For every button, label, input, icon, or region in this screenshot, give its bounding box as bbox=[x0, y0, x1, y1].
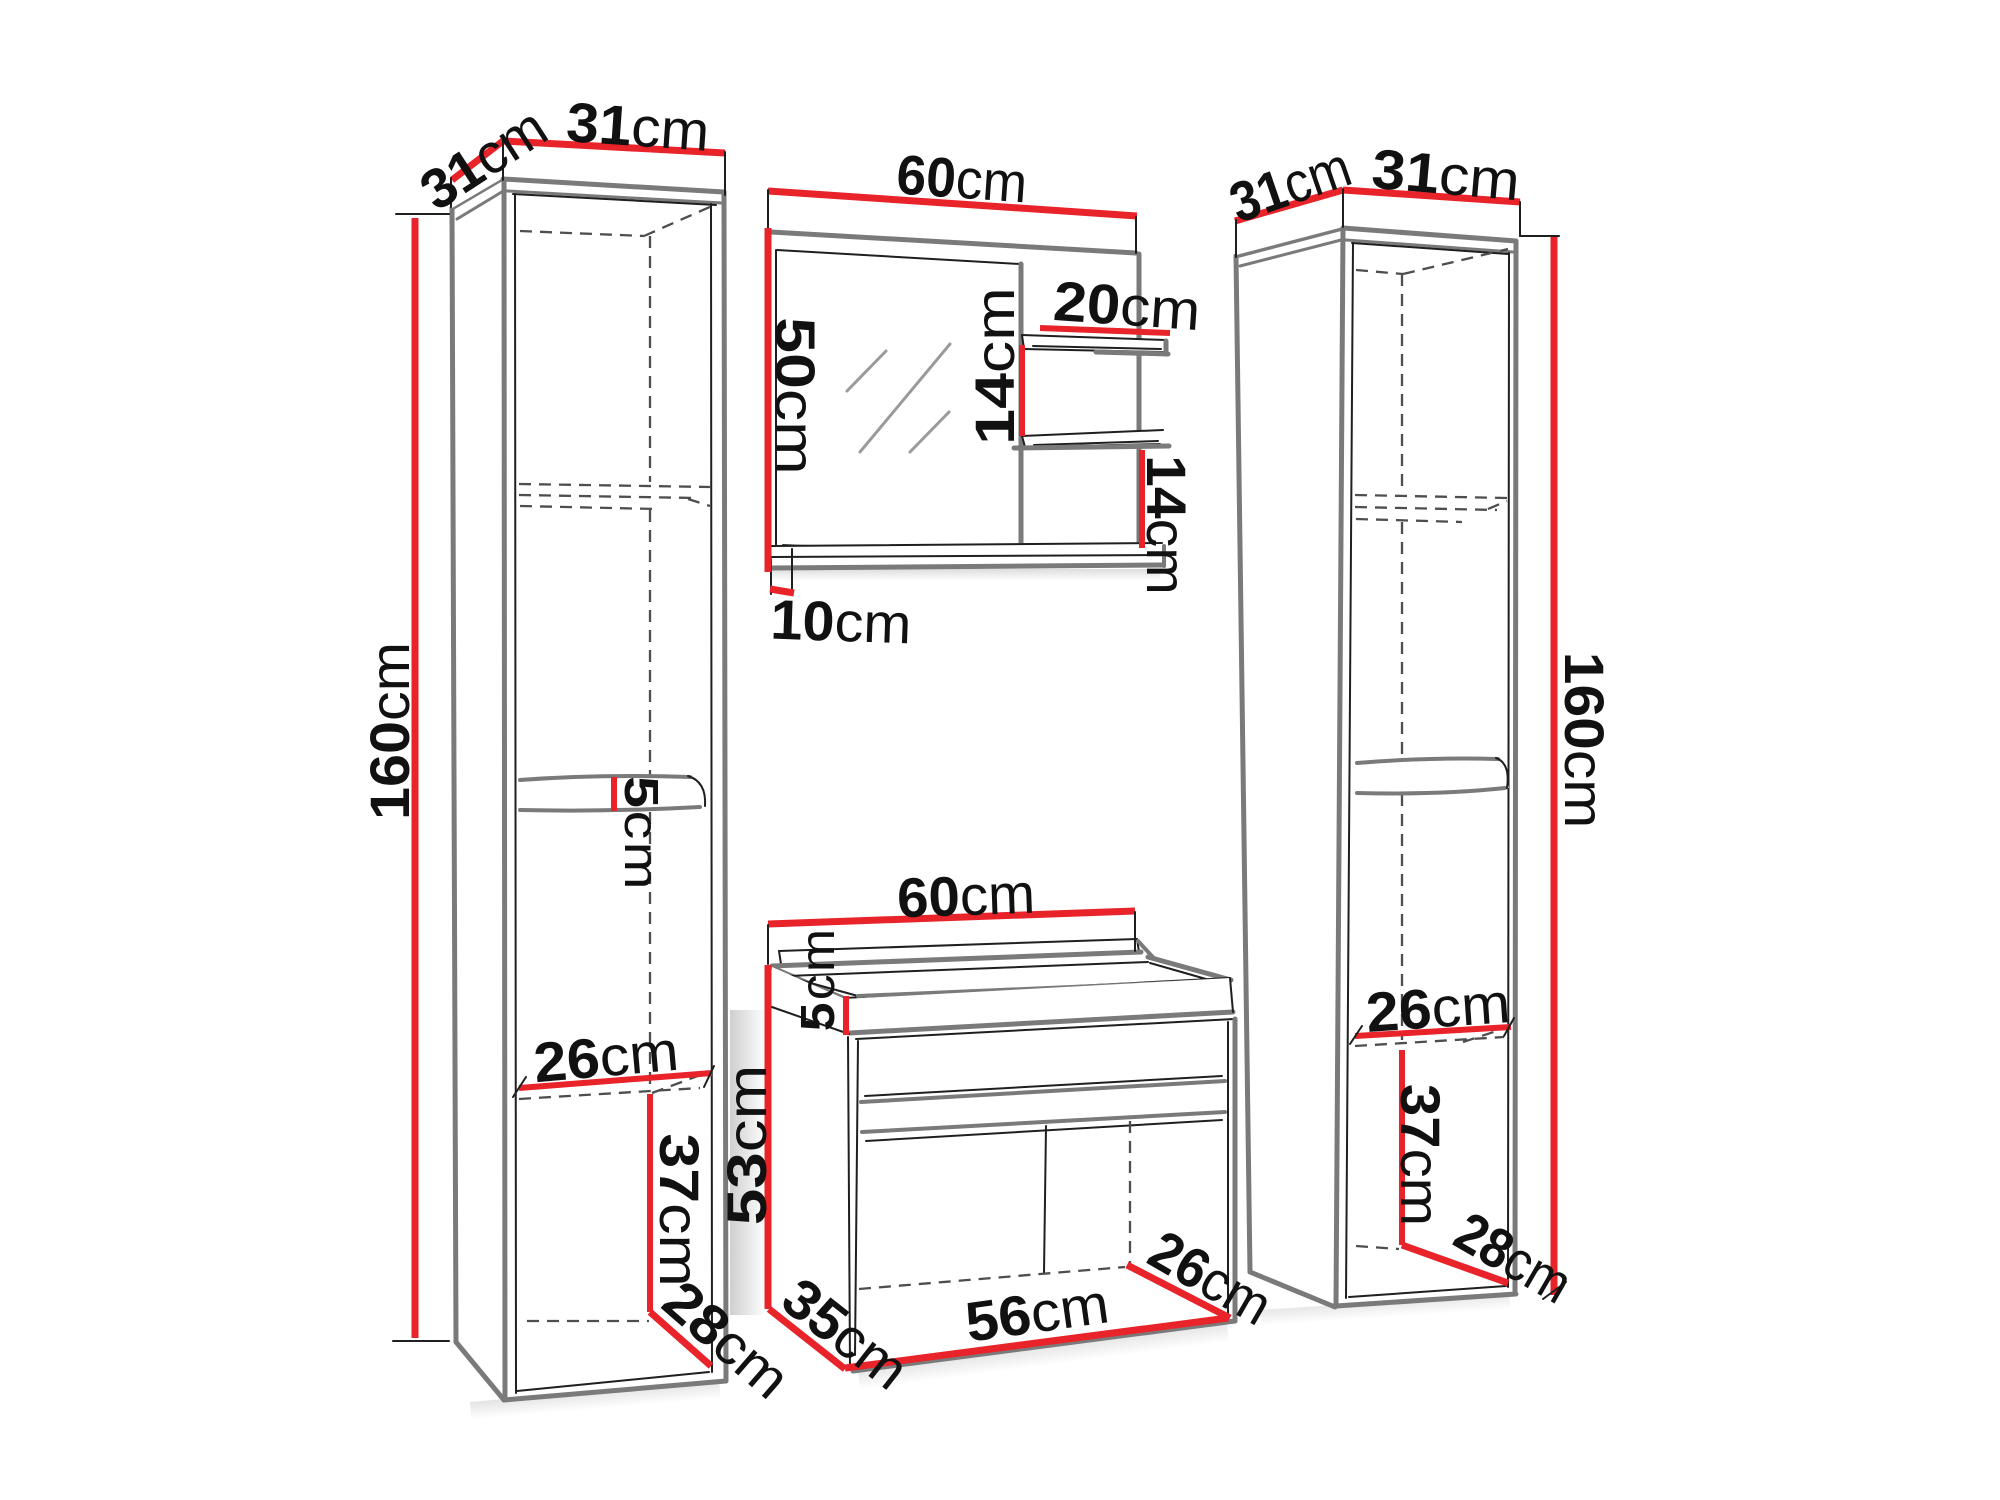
svg-text:53cm: 53cm bbox=[716, 1065, 778, 1226]
svg-text:10cm: 10cm bbox=[769, 589, 912, 656]
svg-text:60cm: 60cm bbox=[896, 862, 1036, 930]
svg-text:5cm: 5cm bbox=[791, 927, 845, 1031]
svg-text:26cm: 26cm bbox=[1364, 972, 1512, 1044]
svg-text:37cm: 37cm bbox=[1388, 1084, 1451, 1226]
svg-text:50cm: 50cm bbox=[764, 317, 827, 474]
svg-text:14cm: 14cm bbox=[963, 287, 1026, 444]
svg-text:26cm: 26cm bbox=[531, 1020, 681, 1095]
svg-text:14cm: 14cm bbox=[1135, 455, 1197, 595]
svg-text:160cm: 160cm bbox=[1552, 652, 1614, 828]
svg-text:31cm: 31cm bbox=[564, 91, 711, 163]
svg-text:5cm: 5cm bbox=[614, 776, 667, 892]
svg-text:160cm: 160cm bbox=[360, 642, 422, 820]
svg-text:31cm: 31cm bbox=[1369, 138, 1522, 213]
svg-text:60cm: 60cm bbox=[895, 142, 1030, 214]
svg-text:20cm: 20cm bbox=[1051, 270, 1202, 343]
svg-text:37cm: 37cm bbox=[648, 1133, 711, 1286]
